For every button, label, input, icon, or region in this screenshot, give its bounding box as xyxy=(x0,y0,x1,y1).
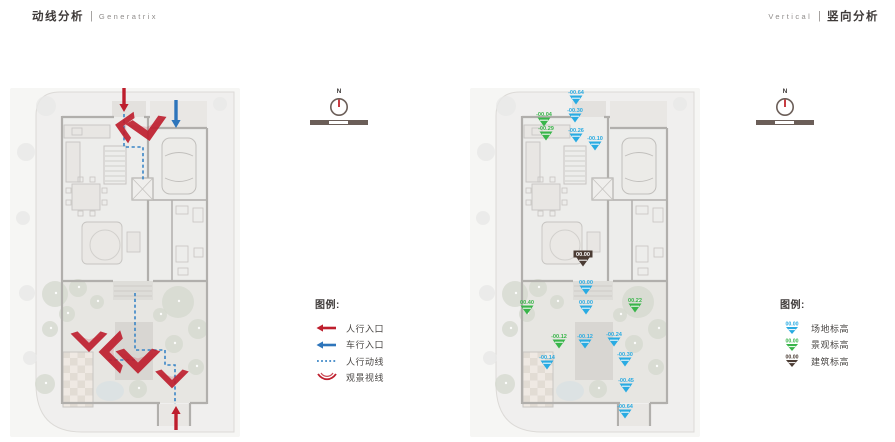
marker-dark-icon: 00.00 xyxy=(780,353,804,369)
legend-item-label: 景观标高 xyxy=(811,338,849,351)
svg-text:-00.29: -00.29 xyxy=(538,126,554,132)
arrow-left-blue-icon xyxy=(315,337,339,353)
svg-text:-00.30: -00.30 xyxy=(617,352,633,358)
title-en: Vertical xyxy=(768,12,812,21)
vertical-floor-plan: -00.64-00.30-00.04-00.29-00.26-00.1000.0… xyxy=(470,88,700,437)
svg-text:00.00: 00.00 xyxy=(579,280,593,286)
svg-text:-00.64: -00.64 xyxy=(617,404,634,410)
legend-item: 人行入口 xyxy=(315,320,384,337)
svg-text:-00.12: -00.12 xyxy=(577,334,593,340)
title-zh: 竖向分析 xyxy=(827,8,879,24)
legend-items: 人行入口车行入口人行动线观景视线 xyxy=(315,320,384,386)
legend-item: 00.00场地标高 xyxy=(780,320,849,337)
title-zh: 动线分析 xyxy=(32,8,84,24)
north-label: N xyxy=(310,88,368,95)
svg-text:00.22: 00.22 xyxy=(628,298,642,304)
svg-text:00.00: 00.00 xyxy=(786,355,799,361)
chevron-red-icon xyxy=(315,370,339,386)
legend-items: 00.00场地标高00.00景观标高00.00建筑标高 xyxy=(780,320,849,370)
page-title-vertical: Vertical | 竖向分析 xyxy=(768,8,879,24)
svg-text:-00.24: -00.24 xyxy=(606,332,623,338)
dotted-line-blue-icon xyxy=(315,353,339,369)
circulation-legend: 图例: 人行入口车行入口人行动线观景视线 xyxy=(315,296,384,386)
marker-green-icon: 00.00 xyxy=(780,337,804,353)
svg-text:00.00: 00.00 xyxy=(579,300,593,306)
svg-text:-00.26: -00.26 xyxy=(568,128,584,134)
legend-item: 00.00景观标高 xyxy=(780,337,849,354)
legend-title: 图例: xyxy=(780,296,849,311)
svg-text:-00.10: -00.10 xyxy=(587,136,603,142)
marker-blue-icon: 00.00 xyxy=(780,320,804,336)
legend-item-label: 场地标高 xyxy=(811,322,849,335)
title-divider: | xyxy=(90,10,93,22)
scale-bar xyxy=(310,120,368,125)
scale-bar xyxy=(756,120,814,125)
svg-text:-00.64: -00.64 xyxy=(568,90,585,96)
legend-item-label: 车行入口 xyxy=(346,338,384,351)
svg-text:00.00: 00.00 xyxy=(786,322,799,328)
title-divider: | xyxy=(818,10,821,22)
page-title-circulation: 动线分析 | Generatrix xyxy=(32,8,158,24)
svg-text:-00.12: -00.12 xyxy=(551,334,567,340)
legend-item-label: 观景视线 xyxy=(346,371,384,384)
floor-plan-drawing xyxy=(10,88,240,437)
north-compass: N xyxy=(310,88,368,125)
legend-item: 00.00建筑标高 xyxy=(780,353,849,370)
svg-text:-00.04: -00.04 xyxy=(536,112,553,118)
legend-item-label: 建筑标高 xyxy=(811,355,849,368)
elevation-legend: 图例: 00.00场地标高00.00景观标高00.00建筑标高 xyxy=(780,296,849,370)
svg-text:00.40: 00.40 xyxy=(520,300,534,306)
title-en: Generatrix xyxy=(99,12,158,21)
svg-text:00.00: 00.00 xyxy=(786,338,799,344)
floor-plan-drawing: -00.64-00.30-00.04-00.29-00.26-00.1000.0… xyxy=(470,88,700,437)
compass-icon xyxy=(772,95,798,117)
svg-text:00.00: 00.00 xyxy=(576,252,590,258)
svg-text:-00.30: -00.30 xyxy=(567,108,583,114)
legend-item: 车行入口 xyxy=(315,337,384,354)
arrow-left-red-icon xyxy=(315,320,339,336)
legend-title: 图例: xyxy=(315,296,384,311)
legend-item-label: 人行入口 xyxy=(346,322,384,335)
legend-item-label: 人行动线 xyxy=(346,355,384,368)
legend-item: 观景视线 xyxy=(315,370,384,387)
svg-text:-00.45: -00.45 xyxy=(618,378,634,384)
compass-icon xyxy=(326,95,352,117)
legend-item: 人行动线 xyxy=(315,353,384,370)
north-label: N xyxy=(756,88,814,95)
circulation-floor-plan xyxy=(10,88,240,437)
north-compass: N xyxy=(756,88,814,125)
svg-text:-00.14: -00.14 xyxy=(539,355,556,361)
